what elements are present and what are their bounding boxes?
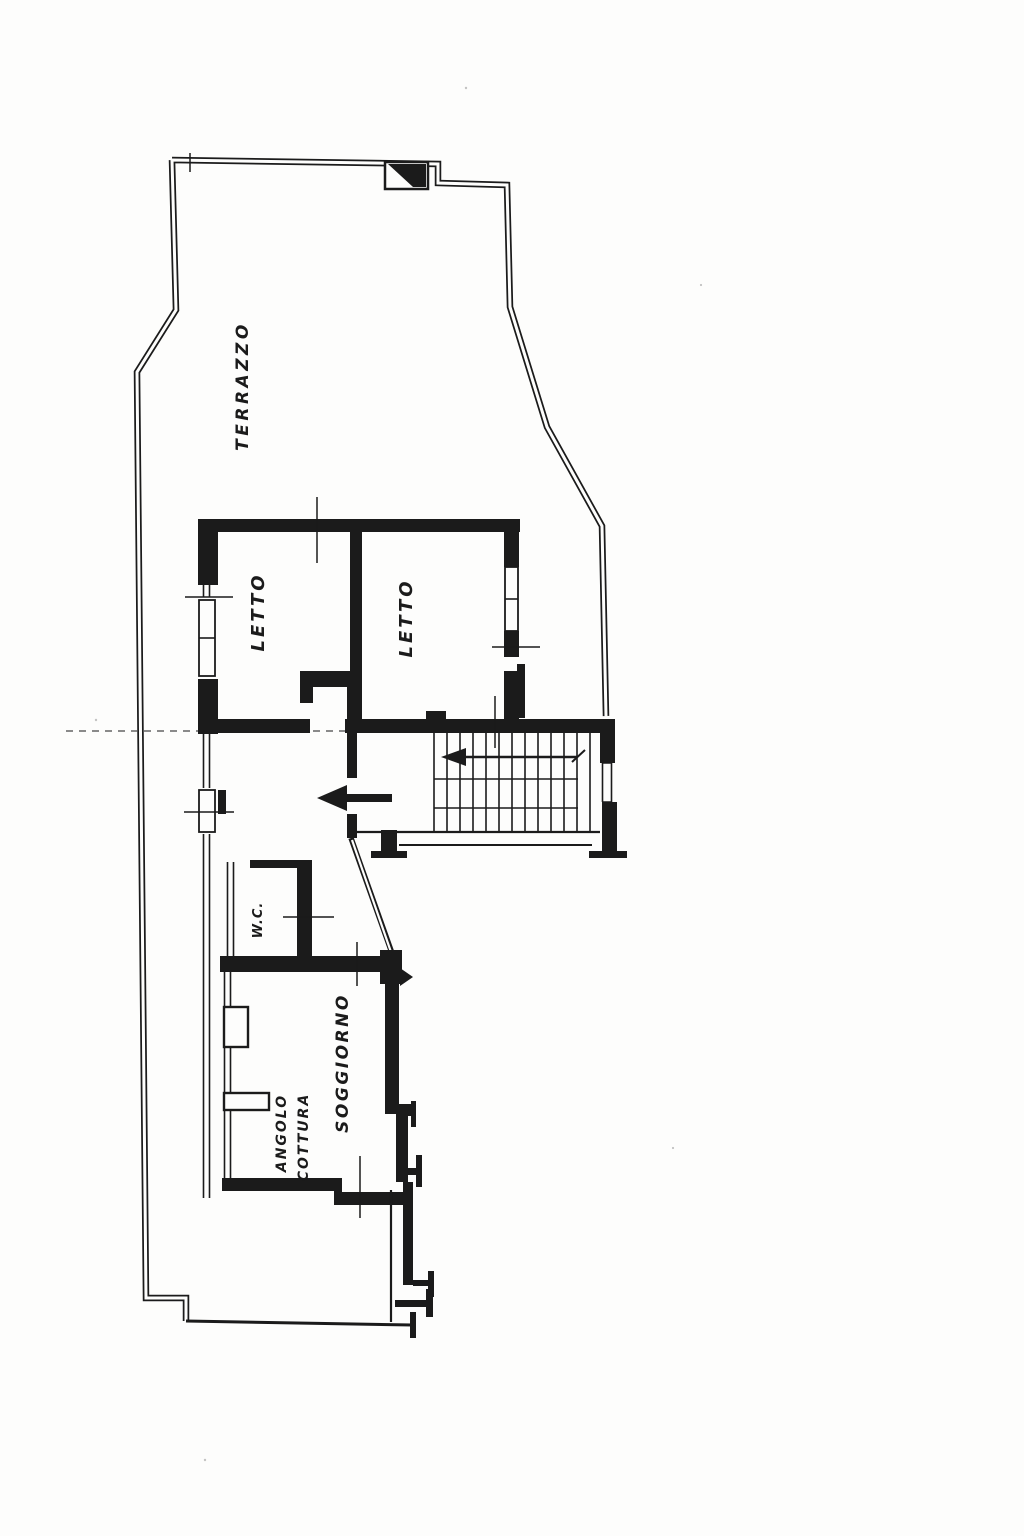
label-cottura: COTTURA — [296, 1093, 312, 1182]
scanned-floor-plan-page: TERRAZZO LETTO LETTO W.C. SOGGIORNO ANGO… — [0, 0, 1024, 1536]
label-terrazzo: TERRAZZO — [233, 321, 253, 451]
floor-plan-drawing: TERRAZZO LETTO LETTO W.C. SOGGIORNO ANGO… — [0, 0, 1024, 1536]
shaft-marker-icon — [385, 162, 428, 189]
label-angolo: ANGOLO — [274, 1094, 290, 1173]
entrance-arrow-icon — [317, 785, 392, 811]
label-soggiorno: SOGGIORNO — [333, 993, 353, 1133]
stair-treads — [434, 733, 590, 831]
label-wc: W.C. — [251, 902, 266, 939]
label-letto-right: LETTO — [396, 578, 417, 657]
label-letto-left: LETTO — [248, 572, 269, 651]
terrace-outline — [137, 153, 606, 1321]
